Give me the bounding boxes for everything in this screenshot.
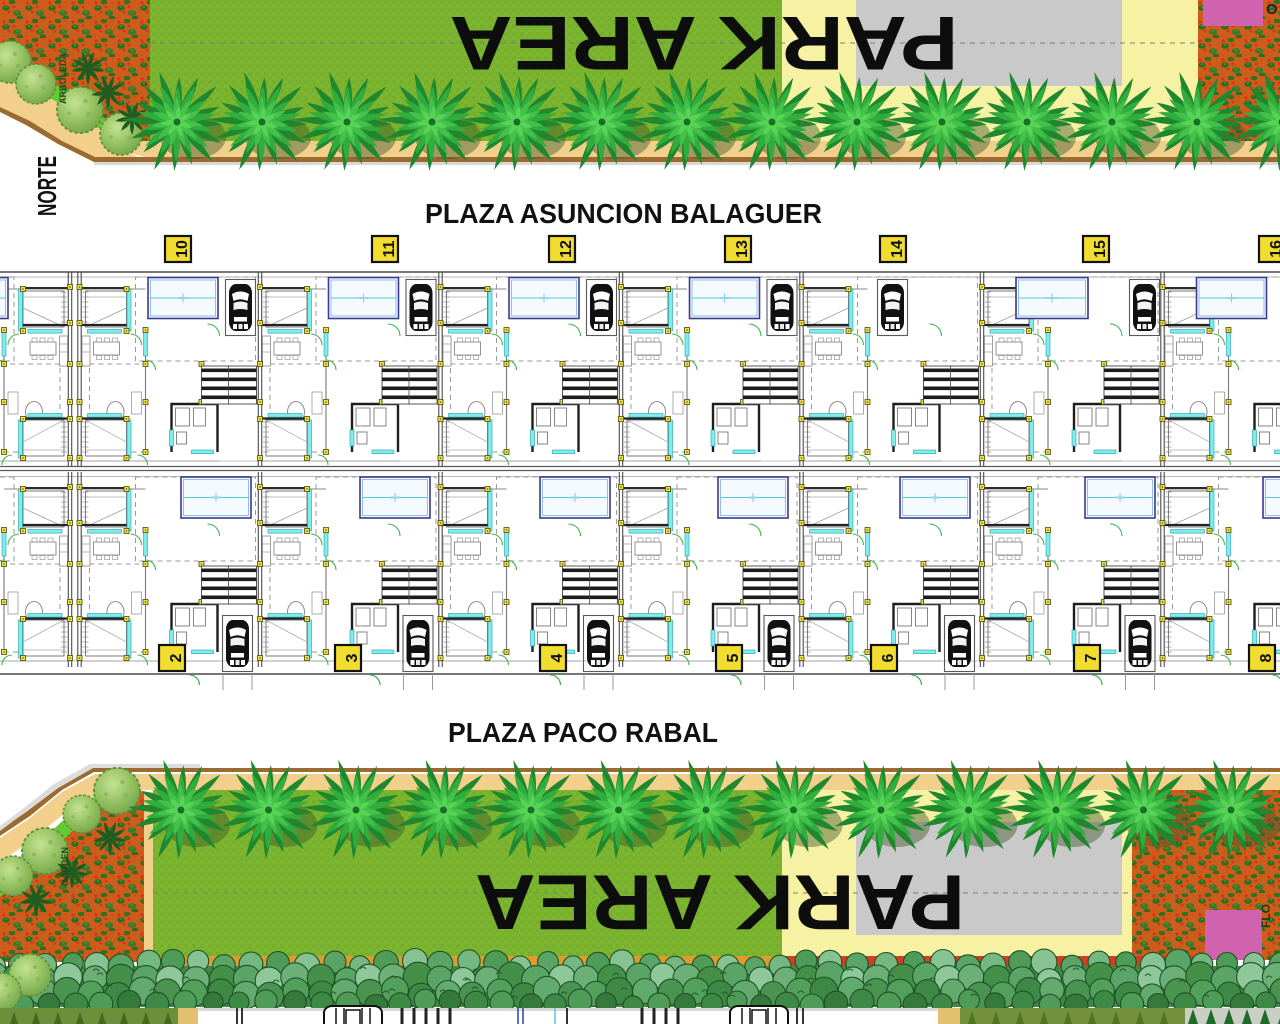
svg-text:PARK AREA: PARK AREA — [475, 858, 965, 946]
svg-text:PARK AREA: PARK AREA — [450, 0, 959, 85]
svg-text:8: 8 — [1258, 653, 1275, 662]
svg-text:4: 4 — [549, 653, 566, 662]
svg-text:O: O — [1266, 1, 1278, 18]
svg-text:PLAZA ASUNCION BALAGUER: PLAZA ASUNCION BALAGUER — [425, 198, 822, 229]
svg-text:GARDEN: GARDEN — [60, 847, 70, 886]
svg-text:PLAZA PACO RABAL: PLAZA PACO RABAL — [448, 717, 718, 748]
svg-text:10: 10 — [174, 240, 191, 258]
svg-text:11: 11 — [381, 240, 398, 257]
svg-text:16: 16 — [1268, 240, 1280, 258]
svg-text:NORTE: NORTE — [32, 156, 62, 216]
svg-text:5: 5 — [725, 653, 742, 662]
svg-text:FLO: FLO — [1259, 904, 1273, 928]
svg-text:12: 12 — [558, 240, 575, 258]
svg-text:2: 2 — [168, 653, 185, 662]
svg-text:3: 3 — [344, 653, 361, 662]
svg-text:6: 6 — [880, 653, 897, 662]
svg-text:7: 7 — [1083, 653, 1100, 662]
svg-text:13: 13 — [734, 240, 751, 258]
svg-text:14: 14 — [889, 240, 906, 258]
svg-text:15: 15 — [1092, 240, 1109, 258]
svg-text:ARBOLEDA: ARBOLEDA — [58, 53, 68, 104]
